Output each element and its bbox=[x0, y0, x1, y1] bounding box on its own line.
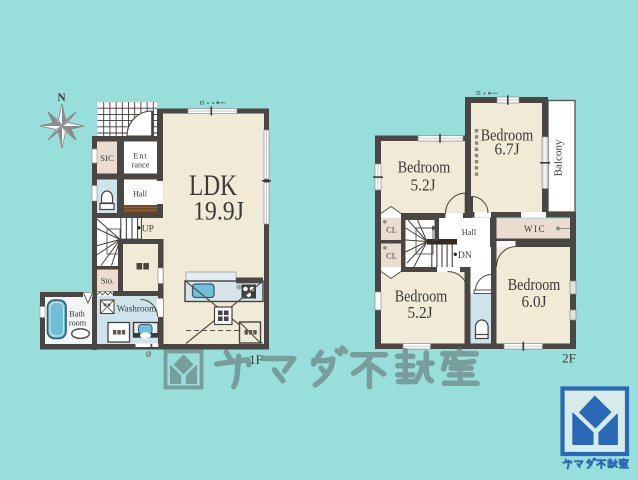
svg-text:Bedroom: Bedroom bbox=[398, 158, 451, 177]
svg-text:N: N bbox=[57, 92, 66, 104]
svg-text:Balcony: Balcony bbox=[553, 139, 565, 176]
svg-text:6.0J: 6.0J bbox=[522, 292, 548, 311]
svg-text:5.2J: 5.2J bbox=[411, 176, 437, 195]
svg-text:DN: DN bbox=[458, 251, 472, 261]
svg-text:2F: 2F bbox=[562, 351, 576, 366]
svg-text:Bath: Bath bbox=[69, 310, 84, 319]
svg-text:Sto.: Sto. bbox=[101, 277, 114, 286]
svg-text:CL: CL bbox=[386, 226, 397, 235]
svg-text:19.9J: 19.9J bbox=[193, 197, 244, 226]
svg-text:rance: rance bbox=[132, 161, 150, 170]
svg-text:SIC: SIC bbox=[100, 153, 114, 163]
svg-text:5.2J: 5.2J bbox=[408, 303, 434, 322]
svg-text:6.7J: 6.7J bbox=[495, 140, 521, 159]
svg-text:Ent: Ent bbox=[133, 152, 147, 161]
svg-text:WIC: WIC bbox=[524, 224, 546, 234]
svg-text:1F: 1F bbox=[249, 352, 263, 367]
svg-text:Hall: Hall bbox=[133, 190, 148, 199]
svg-text:room: room bbox=[69, 319, 87, 328]
svg-text:Washroom: Washroom bbox=[117, 304, 157, 315]
svg-text:Hall: Hall bbox=[462, 228, 477, 237]
svg-text:CL: CL bbox=[386, 252, 397, 261]
svg-text:UP: UP bbox=[142, 225, 154, 235]
